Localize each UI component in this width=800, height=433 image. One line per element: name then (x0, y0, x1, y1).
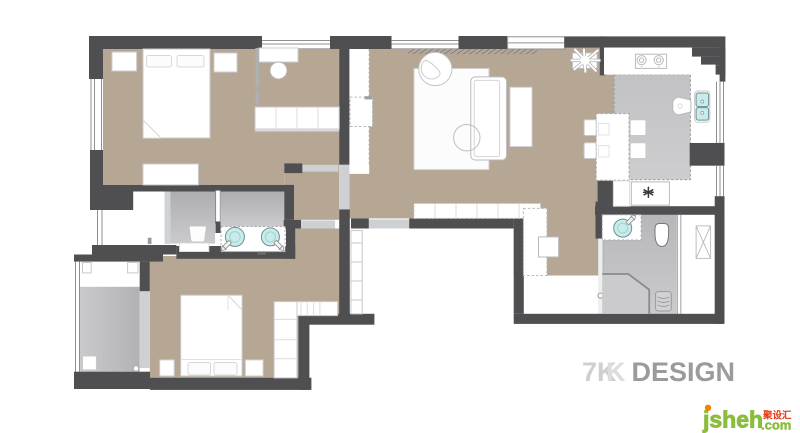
svg-text:聚设汇: 聚设汇 (762, 410, 792, 422)
svg-text:DESIGN: DESIGN (632, 357, 736, 387)
svg-text:K: K (606, 357, 626, 387)
svg-text:jsheh: jsheh (702, 407, 763, 433)
